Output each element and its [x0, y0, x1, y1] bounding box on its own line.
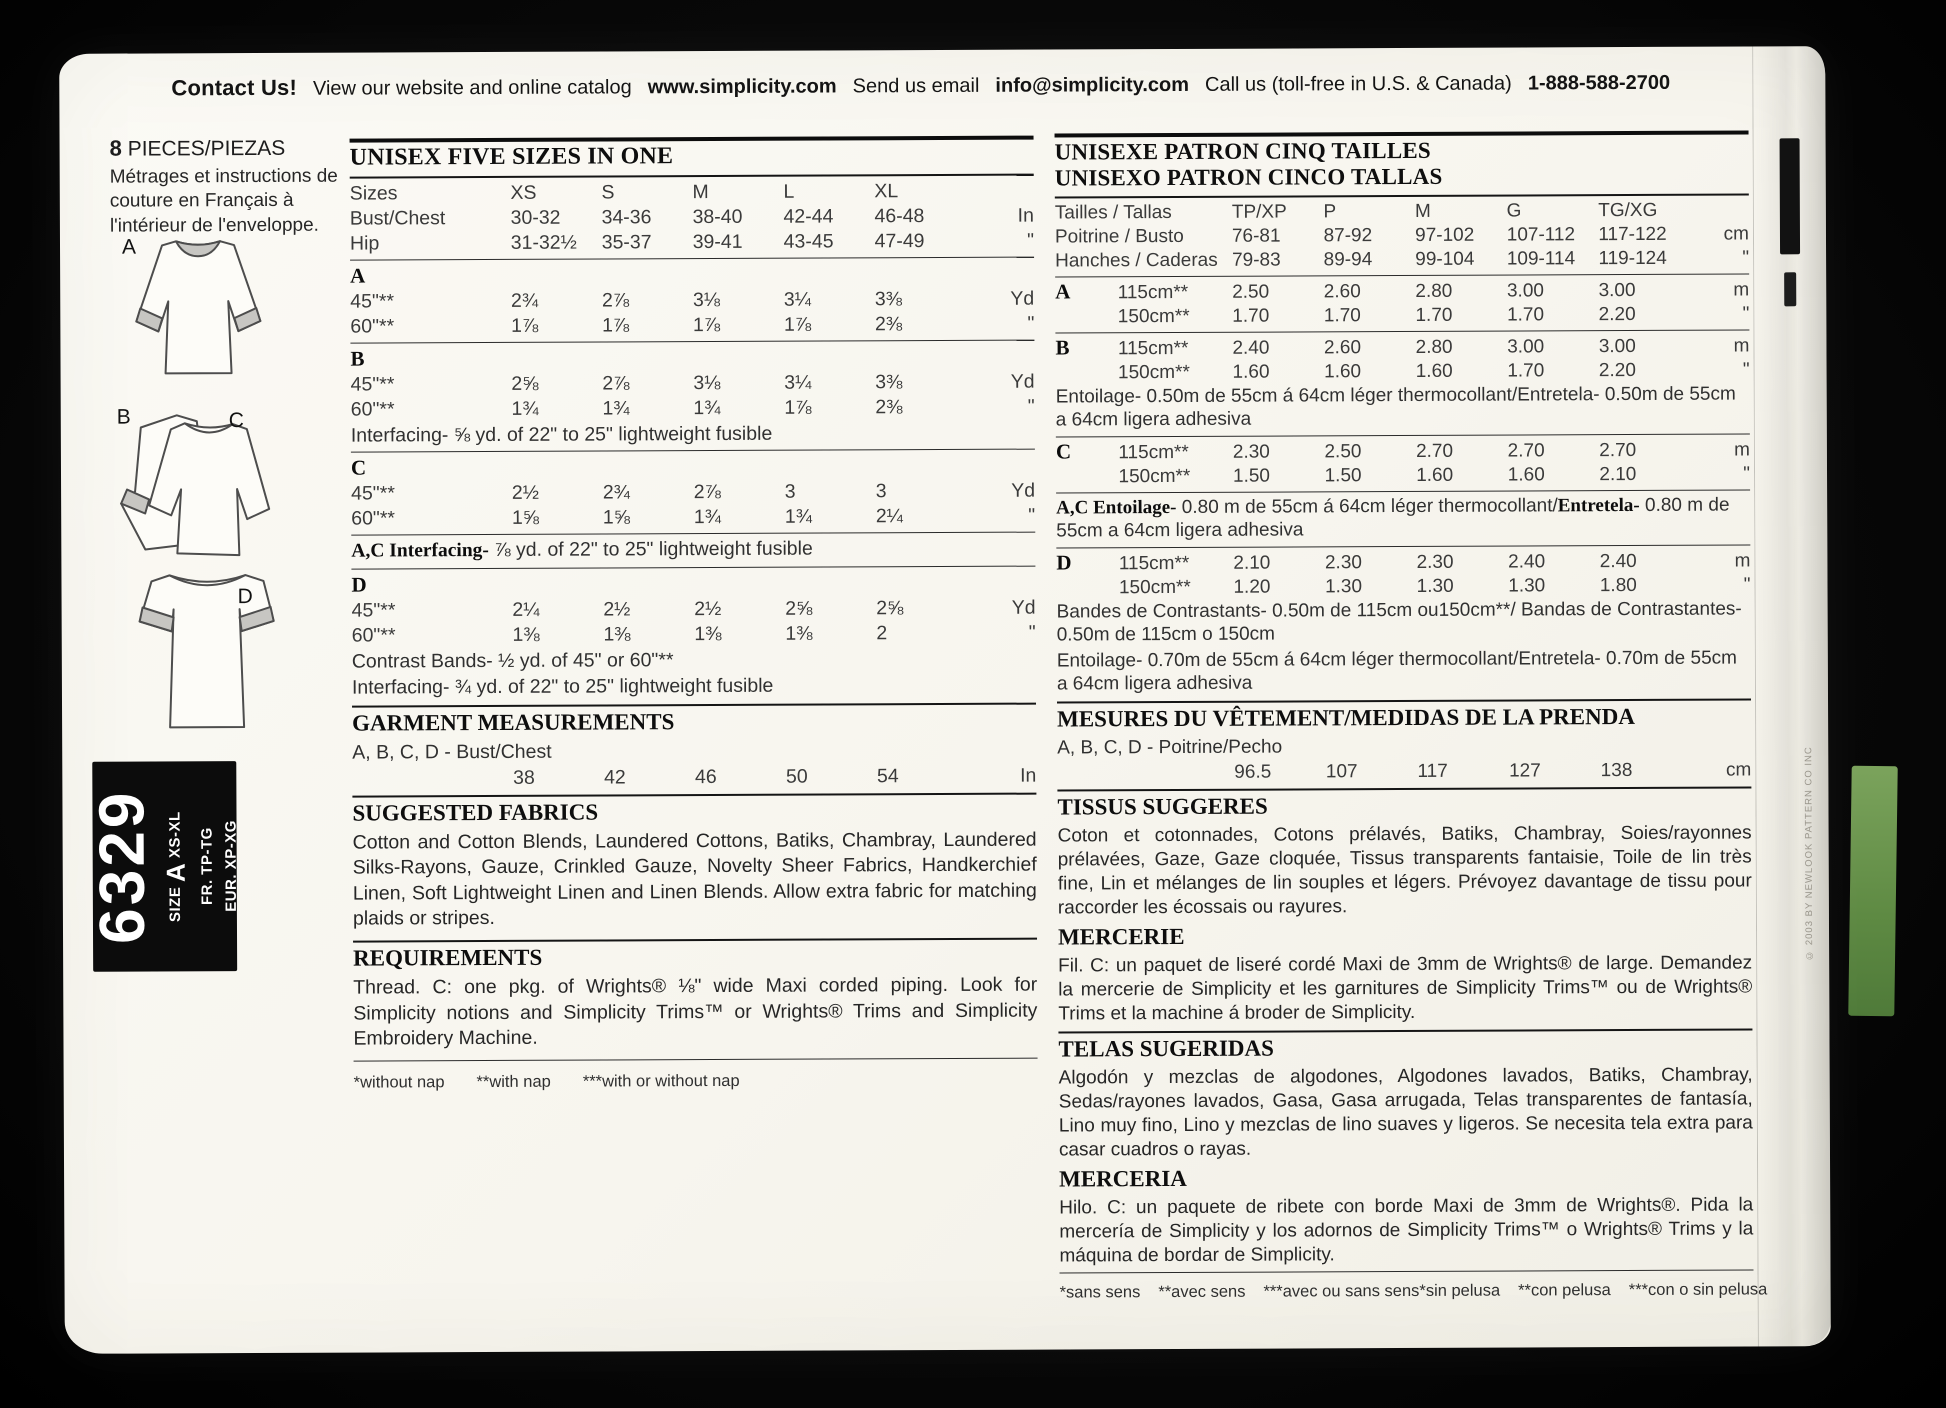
- table-cell: 2½: [603, 597, 694, 621]
- table-cell: Yd: [967, 595, 1036, 619]
- mercerie-title: MERCERIE: [1058, 922, 1752, 951]
- table-cell: 1.20: [1233, 575, 1325, 598]
- table-cell: 3⅜: [875, 370, 966, 394]
- table-cell: 2.10: [1599, 462, 1691, 485]
- table-cell: 1¾: [694, 505, 785, 529]
- size-range: XS-XL: [166, 811, 183, 858]
- table-cell: 2.30: [1233, 440, 1325, 463]
- table-cell: 2⅞: [602, 371, 693, 395]
- table-cell: 99-104: [1415, 247, 1507, 270]
- table-cell: 2½: [512, 481, 603, 505]
- table-cell: 3.00: [1507, 335, 1599, 358]
- table-cell: 1⅝: [512, 506, 603, 530]
- table-cell: 43-45: [784, 229, 875, 253]
- section-letter: D: [351, 569, 1035, 597]
- table-cell: ": [967, 620, 1036, 644]
- table-cell: 2¼: [876, 504, 967, 528]
- section-letter: B: [350, 344, 1034, 372]
- spanish-table-title: UNISEXO PATRON CINCO TALLAS: [1055, 162, 1749, 191]
- table-cell: 2½: [694, 596, 785, 620]
- divider: [351, 565, 1035, 569]
- table-cell: 76-81: [1232, 224, 1324, 247]
- table-cell: 117-122: [1598, 222, 1690, 245]
- ac-entoilage-text-fr: 0.80 m de 55cm á 64cm léger thermocollan…: [1176, 495, 1557, 518]
- table-cell: 115cm**: [1118, 336, 1233, 359]
- mesures-row: 96.5107117127138cm: [1057, 759, 1751, 785]
- edge-print-mark-small: [1784, 272, 1796, 306]
- table-cell: D: [1056, 551, 1119, 574]
- table-cell: 1⅞: [602, 313, 693, 337]
- table-cell: 3.00: [1599, 334, 1691, 357]
- table-cell: 2⅞: [602, 288, 693, 312]
- view-label-d: D: [237, 585, 252, 609]
- divider: [351, 532, 1035, 536]
- table-cell: 150cm**: [1118, 304, 1233, 327]
- yardage-row: 45"**2¼2½2½2⅝2⅝Yd: [352, 595, 1036, 622]
- table-cell: Poitrine / Busto: [1055, 224, 1232, 248]
- table-cell: 1⅜: [785, 621, 876, 645]
- table-cell: S: [601, 180, 692, 204]
- table-cell: 3¼: [784, 287, 875, 311]
- table-cell: 127: [1509, 760, 1601, 783]
- ac-interfacing-text: ⅞ yd. of 22" to 25" lightweight fusible: [489, 538, 813, 561]
- table-cell: 150cm**: [1118, 360, 1233, 383]
- table-cell: 107-112: [1507, 223, 1599, 246]
- footnote-sans-sens: *sans sens: [1060, 1283, 1141, 1302]
- divider: [1055, 193, 1749, 198]
- suggested-fabrics-title: SUGGESTED FABRICS: [352, 797, 1036, 826]
- divider: [350, 174, 1034, 179]
- table-cell: 46-48: [874, 204, 965, 228]
- size-row: Poitrine / Busto76-8187-9297-102107-1121…: [1055, 222, 1749, 248]
- table-cell: 1¾: [693, 396, 784, 420]
- table-cell: 3.00: [1507, 279, 1599, 302]
- table-cell: Sizes: [350, 181, 511, 206]
- metrage-row: D115cm**2.102.302.302.402.40m: [1056, 548, 1750, 575]
- table-cell: 1⅜: [512, 622, 603, 646]
- phone-text: Call us (toll-free in U.S. & Canada): [1205, 73, 1512, 97]
- table-cell: TP/XP: [1232, 200, 1324, 223]
- nap-footnotes: *without nap **with nap ***with or witho…: [354, 1071, 1038, 1093]
- table-cell: 1.30: [1325, 575, 1417, 598]
- edge-print-mark: [1780, 138, 1801, 254]
- table-cell: Tailles / Tallas: [1055, 200, 1232, 224]
- divider: [354, 1058, 1038, 1062]
- pieces-count: 8: [110, 136, 122, 161]
- table-cell: 31-32½: [511, 230, 602, 254]
- merceria-title: MERCERIA: [1059, 1163, 1753, 1192]
- table-cell: 3.00: [1598, 278, 1690, 301]
- table-cell: 60"**: [351, 506, 512, 531]
- table-cell: 2⅝: [785, 596, 876, 620]
- table-cell: 1.60: [1324, 359, 1416, 382]
- table-cell: 1.30: [1508, 574, 1600, 597]
- metrage-row: 150cm**1.701.701.701.702.20": [1055, 302, 1749, 328]
- view-label-a: A: [122, 236, 136, 260]
- ac-interfacing-note: A,C Interfacing- ⅞ yd. of 22" to 25" lig…: [351, 536, 1035, 564]
- yardage-row: 45"**2⅝2⅞3⅛3¼3⅜Yd: [351, 370, 1035, 397]
- table-cell: 2¾: [511, 288, 602, 312]
- table-cell: 96.5: [1234, 761, 1326, 784]
- table-cell: 1⅜: [603, 622, 694, 646]
- interfacing-note: Interfacing- ⅝ yd. of 22" to 25" lightwe…: [351, 421, 1035, 448]
- table-cell: A: [1055, 280, 1118, 303]
- pattern-envelope-back: © 2003 BY NEWLOOK PATTERN CO INC Contact…: [59, 46, 1831, 1354]
- table-cell: 1⅞: [784, 395, 875, 419]
- garment-measurements-title: GARMENT MEASUREMENTS: [352, 707, 1036, 736]
- table-cell: 1⅜: [694, 621, 785, 645]
- table-cell: 1¾: [511, 396, 602, 420]
- table-cell: 47-49: [875, 229, 966, 253]
- metrage-row: 150cm**1.501.501.601.602.10": [1056, 462, 1750, 488]
- table-cell: 45"**: [351, 372, 512, 397]
- table-cell: 2.30: [1416, 550, 1508, 573]
- table-cell: cm: [1690, 222, 1749, 245]
- table-cell: 30-32: [511, 205, 602, 229]
- pattern-number-box: 6329 SIZE A XS-XL FR. TP-TG EUR. XP-XG: [92, 761, 237, 972]
- yardage-row: 60"**1⅝1⅝1¾1¾2¼": [351, 504, 1035, 531]
- table-cell: 1.70: [1507, 303, 1599, 326]
- divider: [1055, 273, 1749, 277]
- view-label-b: B: [117, 406, 131, 430]
- yardage-row: 60"**1¾1¾1¾1⅞2⅜": [351, 395, 1035, 422]
- table-cell: 2.40: [1600, 549, 1692, 572]
- table-cell: 2.70: [1508, 439, 1600, 462]
- table-cell: In: [965, 204, 1034, 228]
- telas-text: Algodón y mezclas de algodones, Algodone…: [1059, 1063, 1753, 1162]
- divider: [1056, 489, 1750, 493]
- table-cell: B: [1055, 336, 1118, 359]
- table-cell: 1⅞: [511, 313, 602, 337]
- footnote-con-pelusa: **con pelusa: [1518, 1281, 1611, 1300]
- table-cell: ": [967, 504, 1036, 528]
- email-text: Send us email: [853, 75, 980, 99]
- table-cell: 42: [604, 765, 695, 789]
- requirements-title: REQUIREMENTS: [353, 943, 1037, 972]
- table-cell: 97-102: [1415, 223, 1507, 246]
- size-prefix: SIZE: [167, 886, 184, 921]
- shirt-d-outline: [139, 575, 274, 728]
- table-cell: TG/XG: [1598, 198, 1690, 221]
- table-cell: 3: [785, 480, 876, 504]
- divider: [352, 792, 1036, 797]
- table-cell: 1.60: [1416, 359, 1508, 382]
- table-cell: 1.70: [1415, 303, 1507, 326]
- divider: [1058, 1028, 1752, 1033]
- size-letter: A: [161, 862, 191, 881]
- table-cell: 45"**: [352, 598, 513, 623]
- contact-bar: Contact Us! View our website and online …: [171, 68, 1771, 101]
- pieces-label: PIECES/PIEZAS: [128, 137, 286, 161]
- table-cell: 150cm**: [1119, 575, 1234, 598]
- pieces-count-line: 8 PIECES/PIEZAS: [110, 135, 355, 162]
- footnote-avec-sens: **avec sens: [1158, 1282, 1245, 1301]
- table-cell: 89-94: [1324, 247, 1416, 270]
- table-cell: 79-83: [1232, 248, 1324, 271]
- english-yardage-panel: UNISEX FIVE SIZES IN ONE SizesXSSMLXL Bu…: [350, 136, 1038, 1093]
- website-url: www.simplicity.com: [648, 75, 837, 99]
- table-cell: L: [783, 179, 874, 203]
- french-table-title: UNISEXE PATRON CINQ TAILLES: [1055, 136, 1749, 165]
- table-cell: 119-124: [1598, 246, 1690, 269]
- table-cell: Bust/Chest: [350, 206, 511, 231]
- table-cell: Hanches / Caderas: [1055, 248, 1232, 272]
- size-row: Tailles / TallasTP/XPPMGTG/XG: [1055, 198, 1749, 224]
- metrage-row: A115cm**2.502.602.803.003.00m: [1055, 277, 1749, 304]
- table-cell: 50: [786, 764, 877, 788]
- table-cell: 2.70: [1416, 439, 1508, 462]
- footnote-con-o-sin-pelusa: ***con o sin pelusa: [1629, 1280, 1768, 1300]
- adjacent-envelope-strip: [1848, 766, 1897, 1017]
- table-cell: 2.60: [1324, 335, 1416, 358]
- table-cell: m: [1691, 438, 1750, 461]
- tissus-text: Coton et cotonnades, Cotons prélavés, Ba…: [1058, 822, 1752, 921]
- table-cell: m: [1691, 549, 1750, 572]
- divider: [1056, 433, 1750, 437]
- table-cell: 2⅝: [511, 371, 602, 395]
- table-cell: 1.50: [1233, 464, 1325, 487]
- email-address: info@simplicity.com: [995, 74, 1189, 98]
- table-cell: 2.30: [1325, 551, 1417, 574]
- size-row: Hip31-32½35-3739-4143-4547-49": [350, 229, 1034, 256]
- table-cell: ": [1690, 246, 1749, 269]
- table-cell: Yd: [967, 479, 1036, 503]
- table-cell: Yd: [966, 370, 1035, 394]
- table-cell: 1⅞: [693, 313, 784, 337]
- table-cell: 2⅞: [694, 480, 785, 504]
- footnote-sin-pelusa: *sin pelusa: [1419, 1281, 1500, 1300]
- table-cell: 3⅜: [875, 287, 966, 311]
- divider: [1059, 1269, 1753, 1273]
- ac-entoilage-lead-es: Entretela-: [1558, 495, 1640, 516]
- shirt-a-outline: [136, 241, 261, 374]
- table-cell: 35-37: [602, 230, 693, 254]
- mesures-title: MESURES DU VÊTEMENT/MEDIDAS DE LA PRENDA: [1057, 703, 1751, 732]
- yardage-row: 45"**2½2¾2⅞33Yd: [351, 479, 1035, 506]
- table-cell: M: [692, 180, 783, 204]
- pattern-number: 6329: [89, 789, 154, 944]
- table-cell: 2.50: [1232, 280, 1324, 303]
- website-text: View our website and online catalog: [313, 76, 632, 100]
- divider: [1057, 787, 1751, 792]
- table-cell: 2⅝: [876, 596, 967, 620]
- table-cell: 2⅜: [875, 395, 966, 419]
- table-cell: XS: [510, 180, 601, 204]
- yardage-row: 60"**1⅜1⅜1⅜1⅜2": [352, 620, 1036, 647]
- table-cell: ": [1690, 302, 1749, 325]
- table-cell: 107: [1326, 760, 1418, 783]
- table-cell: 45"**: [351, 481, 512, 506]
- table-cell: 2: [876, 621, 967, 645]
- divider: [353, 938, 1037, 943]
- copyright-vertical-text: © 2003 BY NEWLOOK PATTERN CO INC: [1803, 746, 1815, 961]
- footnote-avec-ou-sans-sens: ***avec ou sans sens: [1263, 1281, 1419, 1301]
- table-cell: 60"**: [352, 623, 513, 648]
- bandes-contrastants-note: Bandes de Contrastants- 0.50m de 115cm o…: [1057, 597, 1751, 647]
- merceria-text: Hilo. C: un paquete de ribete con borde …: [1059, 1193, 1753, 1268]
- footnote-with-or-without-nap: ***with or without nap: [583, 1072, 740, 1092]
- table-cell: 115cm**: [1118, 440, 1233, 463]
- table-cell: 3⅛: [693, 288, 784, 312]
- french-spanish-panel: UNISEXE PATRON CINQ TAILLES UNISEXO PATR…: [1055, 130, 1754, 1302]
- footnote-without-nap: *without nap: [354, 1073, 445, 1092]
- table-cell: ": [1691, 462, 1750, 485]
- footnote-with-nap: **with nap: [476, 1073, 550, 1092]
- table-cell: C: [1056, 440, 1119, 463]
- size-line-fr: FR. TP-TG: [199, 827, 216, 905]
- table-cell: ": [1690, 358, 1749, 381]
- garment-measurements-row: 3842465054In: [352, 763, 1036, 790]
- ac-interfacing-lead: A,C Interfacing-: [351, 540, 489, 562]
- metrage-row: C115cm**2.302.502.702.702.70m: [1056, 437, 1750, 464]
- yardage-row: 45"**2¾2⅞3⅛3¼3⅜Yd: [350, 287, 1034, 314]
- table-cell: 38-40: [693, 205, 784, 229]
- divider: [1057, 698, 1751, 703]
- table-cell: 109-114: [1507, 247, 1599, 270]
- table-cell: 2.80: [1416, 335, 1508, 358]
- table-cell: 2.70: [1599, 438, 1691, 461]
- table-cell: 117: [1417, 760, 1509, 783]
- table-cell: 38: [513, 765, 604, 789]
- yardage-row: 60"**1⅞1⅞1⅞1⅞2⅜": [350, 312, 1034, 339]
- phone-number: 1-888-588-2700: [1528, 72, 1670, 96]
- table-cell: ": [966, 229, 1035, 253]
- table-cell: cm: [1692, 759, 1751, 782]
- section-letter: C: [351, 453, 1035, 481]
- table-cell: 2.50: [1324, 440, 1416, 463]
- table-cell: 39-41: [693, 230, 784, 254]
- table-cell: 1.60: [1232, 360, 1324, 383]
- interfacing-note: Interfacing- ¾ yd. of 22" to 25" lightwe…: [352, 673, 1036, 700]
- contrast-bands-note: Contrast Bands- ½ yd. of 45" or 60"**: [352, 646, 1036, 673]
- footnotes-spanish: *sin pelusa **con pelusa ***con o sin pe…: [1419, 1280, 1767, 1301]
- view-label-c: C: [229, 409, 244, 433]
- size-row: Bust/Chest30-3234-3638-4042-4446-48In: [350, 204, 1034, 231]
- divider: [352, 702, 1036, 707]
- table-cell: Hip: [350, 231, 511, 256]
- table-cell: 1.80: [1600, 573, 1692, 596]
- table-cell: 42-44: [783, 204, 874, 228]
- ac-entoilage-note: A,C Entoilage- 0.80 m de 55cm á 64cm lég…: [1056, 493, 1750, 543]
- contact-us-label: Contact Us!: [171, 75, 297, 102]
- size-line-eur: EUR. XP-XG: [223, 820, 240, 912]
- table-cell: 1⅞: [784, 312, 875, 336]
- table-cell: 60"**: [351, 397, 512, 422]
- table-cell: 1.60: [1508, 463, 1600, 486]
- table-cell: 115cm**: [1119, 551, 1234, 574]
- table-cell: 150cm**: [1118, 464, 1233, 487]
- table-cell: 54: [877, 764, 968, 788]
- table-cell: P: [1323, 199, 1415, 222]
- table-cell: m: [1690, 334, 1749, 357]
- table-cell: 1⅝: [603, 505, 694, 529]
- size-row: Hanches / Caderas79-8389-9499-104109-114…: [1055, 246, 1749, 272]
- metrage-row: 150cm**1.201.301.301.301.80": [1056, 573, 1750, 599]
- divider: [351, 449, 1035, 453]
- table-cell: 46: [695, 765, 786, 789]
- divider: [350, 257, 1034, 261]
- divider: [1056, 544, 1750, 548]
- section-letter: A: [350, 261, 1034, 289]
- table-cell: M: [1415, 199, 1507, 222]
- table-cell: 3⅛: [693, 371, 784, 395]
- table-cell: 2.80: [1415, 279, 1507, 302]
- table-cell: 1.70: [1232, 304, 1324, 327]
- table-cell: 2.40: [1232, 336, 1324, 359]
- table-cell: 1.30: [1417, 574, 1509, 597]
- table-cell: 87-92: [1323, 223, 1415, 246]
- table-cell: 1¾: [602, 396, 693, 420]
- size-line: SIZE A XS-XL: [160, 811, 191, 922]
- tissus-title: TISSUS SUGGERES: [1057, 792, 1751, 821]
- table-cell: 60"**: [350, 314, 511, 339]
- table-cell: 2.40: [1508, 550, 1600, 573]
- table-cell: 2.10: [1233, 551, 1325, 574]
- table-cell: 1.70: [1324, 303, 1416, 326]
- entoilage-note-2: Entoilage- 0.70m de 55cm á 64cm léger th…: [1057, 646, 1751, 696]
- table-cell: 1.50: [1325, 464, 1417, 487]
- table-cell: [1057, 778, 1234, 779]
- table-cell: 3: [876, 479, 967, 503]
- garment-sketch-view-a: [118, 223, 279, 389]
- table-cell: m: [1690, 278, 1749, 301]
- footnotes-french: *sans sens **avec sens ***avec ou sans s…: [1060, 1281, 1420, 1302]
- divider: [350, 340, 1034, 344]
- table-cell: 1.60: [1416, 463, 1508, 486]
- table-cell: 34-36: [602, 205, 693, 229]
- table-cell: 138: [1601, 759, 1693, 782]
- sens-pelusa-footnotes: *sans sens **avec sens ***avec ou sans s…: [1060, 1280, 1754, 1302]
- mercerie-text: Fil. C: un paquet de liseré cordé Maxi d…: [1058, 952, 1752, 1027]
- divider: [1055, 329, 1749, 333]
- suggested-fabrics-text: Cotton and Cotton Blends, Laundered Cott…: [353, 827, 1037, 931]
- table-cell: XL: [874, 179, 965, 203]
- size-row: SizesXSSMLXL: [350, 179, 1034, 206]
- ac-entoilage-lead-fr: A,C Entoilage-: [1056, 497, 1176, 519]
- english-table-title: UNISEX FIVE SIZES IN ONE: [350, 142, 1034, 172]
- entoilage-note: Entoilage- 0.50m de 55cm á 64cm léger th…: [1056, 382, 1750, 432]
- metrage-row: B115cm**2.402.602.803.003.00m: [1055, 333, 1749, 360]
- table-cell: 45"**: [350, 289, 511, 314]
- table-cell: [352, 784, 513, 785]
- table-cell: 2¾: [603, 480, 694, 504]
- telas-title: TELAS SUGERIDAS: [1058, 1033, 1752, 1062]
- table-cell: G: [1507, 199, 1599, 222]
- mesures-label: A, B, C, D - Poitrine/Pecho: [1057, 733, 1751, 760]
- table-cell: 2.60: [1324, 279, 1416, 302]
- table-cell: 2.20: [1599, 302, 1691, 325]
- table-cell: 2⅜: [875, 312, 966, 336]
- metrage-row: 150cm**1.601.601.601.702.20": [1056, 358, 1750, 384]
- table-cell: 2.20: [1599, 358, 1691, 381]
- table-cell: 1.70: [1507, 359, 1599, 382]
- table-cell: 1¾: [785, 505, 876, 529]
- table-cell: 3¼: [784, 370, 875, 394]
- table-cell: 115cm**: [1118, 280, 1233, 303]
- table-cell: In: [968, 763, 1037, 787]
- table-cell: Yd: [966, 287, 1035, 311]
- table-cell: ": [1691, 573, 1750, 596]
- table-cell: 2¼: [512, 597, 603, 621]
- table-cell: ": [966, 395, 1035, 419]
- garment-measurements-label: A, B, C, D - Bust/Chest: [352, 737, 1036, 764]
- table-cell: ": [966, 312, 1035, 336]
- requirements-text: Thread. C: one pkg. of Wrights® ⅛" wide …: [353, 973, 1037, 1052]
- garment-sketch-view-d: [107, 551, 313, 764]
